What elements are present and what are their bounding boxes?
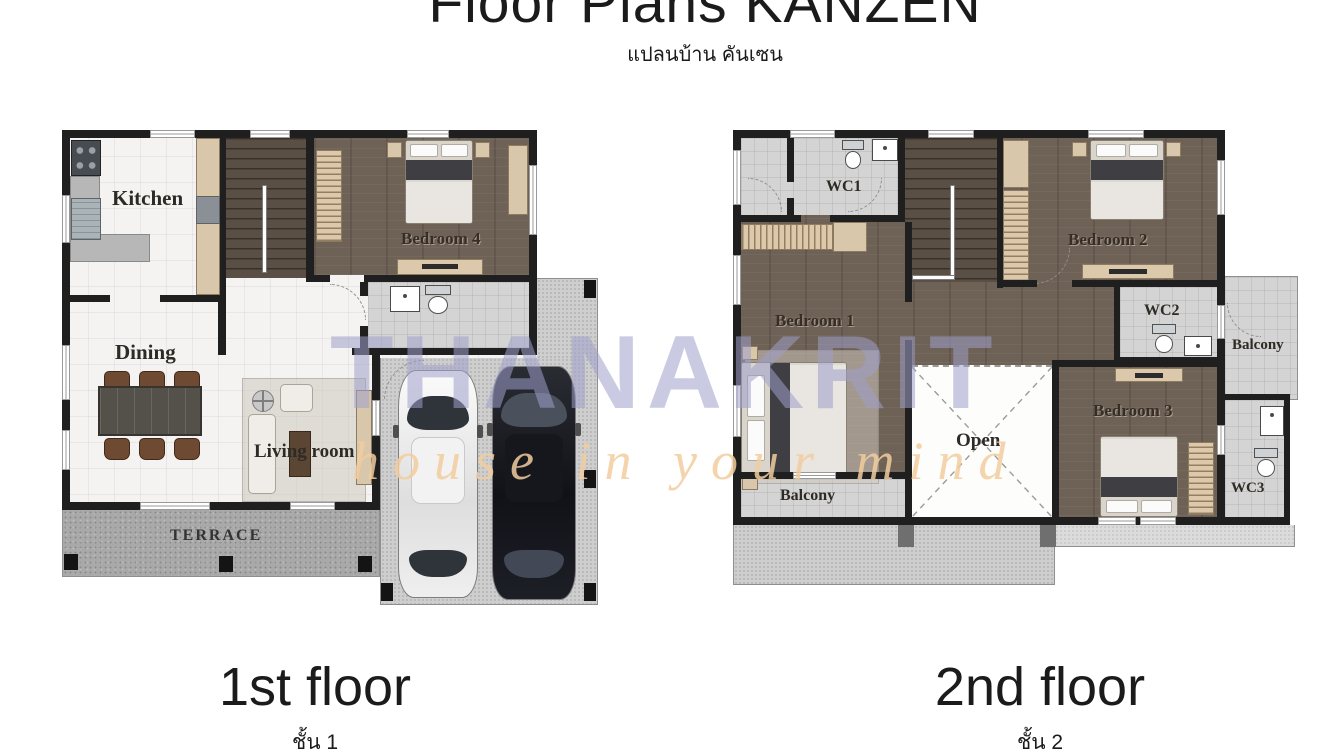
window (140, 502, 210, 510)
floor1-caption: 1st floor (150, 656, 480, 718)
door-opening (1217, 425, 1225, 455)
terrace-post (219, 556, 233, 572)
wall (70, 295, 110, 302)
window (928, 130, 974, 138)
window (150, 130, 195, 138)
wall (741, 215, 801, 222)
wall (1072, 280, 1225, 287)
bedroom1-closet (741, 224, 833, 250)
label-terrace: TERRACE (170, 527, 262, 545)
floor2-stair-railing (950, 185, 955, 280)
window (62, 345, 70, 400)
label-bedroom2: Bedroom 2 (1068, 230, 1148, 250)
shower-tray-icon (1260, 406, 1284, 436)
bedroom2-closet (1003, 190, 1029, 282)
bedroom4-nightstand (475, 142, 490, 158)
bedroom3-closet (1188, 442, 1214, 515)
floor2-stair-railing (912, 275, 955, 280)
label-bedroom3: Bedroom 3 (1093, 401, 1173, 421)
wall (905, 222, 912, 302)
dining-table (98, 386, 202, 436)
bedroom3-bed (1100, 436, 1178, 517)
garage-post (381, 583, 393, 601)
floor1-caption-thai: ชั้น 1 (150, 726, 480, 754)
window (1217, 160, 1225, 215)
window (250, 130, 290, 138)
dining-chair (104, 438, 130, 460)
toilet-icon (1254, 448, 1278, 476)
wall (306, 138, 314, 282)
bedroom2-tv-console (1082, 264, 1174, 279)
wall (997, 280, 1037, 287)
wall (364, 275, 537, 282)
page-title: Floor Plans KANZEN (340, 0, 1070, 36)
window (790, 130, 835, 138)
roof-pilaster (898, 525, 914, 547)
bed-duvet (406, 180, 472, 223)
floor-plan-sheet: Floor Plans KANZEN แปลนบ้าน คันเซน (0, 0, 1342, 754)
window (733, 150, 741, 205)
wall (1284, 394, 1290, 523)
bedroom2-nightstand (1166, 142, 1181, 157)
wall (1059, 360, 1225, 367)
roof-pilaster (1040, 525, 1056, 547)
stove-icon (71, 140, 101, 176)
window (407, 130, 449, 138)
wc-sink-icon (872, 139, 898, 161)
bed-blanket-band (406, 160, 472, 180)
door-opening (1217, 305, 1225, 339)
toilet-icon (425, 285, 451, 317)
wall (997, 138, 1003, 288)
garage-roof-slab (733, 525, 1055, 585)
bedroom3-dresser (1115, 368, 1183, 382)
terrace-post (64, 554, 78, 570)
bedroom4-wardrobe (508, 145, 528, 215)
bedroom1-wardrobe (833, 222, 867, 252)
armchair (280, 384, 313, 412)
terrace-post (358, 556, 372, 572)
floor2-caption-thai: ชั้น 2 (875, 726, 1205, 754)
wall (1217, 394, 1290, 400)
toilet-icon (1152, 324, 1176, 354)
wall (787, 138, 794, 182)
toilet-icon (842, 140, 864, 168)
window (529, 165, 537, 235)
window (62, 430, 70, 470)
bed-blanket-band (1101, 477, 1177, 497)
window (1088, 130, 1144, 138)
watermark-brand: THANAKRIT (330, 314, 1000, 433)
wall (830, 215, 905, 222)
bed-duvet (1091, 180, 1163, 219)
dining-chair (139, 438, 165, 460)
bedroom2-nightstand (1072, 142, 1087, 157)
garage-post (584, 583, 596, 601)
bedroom4-bed (405, 140, 473, 224)
label-wc2: WC2 (1144, 302, 1180, 320)
wall (733, 517, 1290, 525)
wall (360, 282, 368, 296)
dining-chair (174, 438, 200, 460)
label-balcony-side: Balcony (1232, 337, 1284, 354)
bedroom2-cabinet (1003, 140, 1029, 188)
wall (62, 130, 537, 138)
floor2-caption: 2nd floor (875, 656, 1205, 718)
wc-sink-icon (390, 286, 420, 312)
label-dining: Dining (115, 340, 176, 365)
fan-icon (252, 390, 274, 412)
eave-strip (1055, 525, 1295, 547)
bed-blanket-band (1091, 160, 1163, 180)
bedroom4-tv-console (397, 259, 483, 275)
window (62, 195, 70, 243)
garage-post (584, 280, 596, 298)
wall (1052, 360, 1059, 525)
bedroom2-bed (1090, 140, 1164, 220)
wall (220, 138, 226, 295)
watermark-tagline: house in your mind (352, 430, 1019, 492)
car-rear-window (409, 550, 467, 577)
window (290, 502, 335, 510)
wall (787, 198, 794, 215)
car-rear-window (504, 550, 565, 578)
bed-pillows (406, 141, 472, 160)
wall (898, 138, 905, 222)
wc-sink-icon (1184, 336, 1212, 356)
kitchen-appliance (196, 196, 220, 224)
bedroom4-nightstand (387, 142, 402, 158)
page-subtitle-thai: แปลนบ้าน คันเซน (340, 38, 1070, 70)
bed-pillows (1101, 497, 1177, 516)
window (1098, 517, 1136, 525)
wall (1114, 287, 1120, 363)
window (733, 255, 741, 305)
label-kitchen: Kitchen (112, 186, 183, 211)
label-wc3: WC3 (1231, 480, 1264, 497)
wall (218, 295, 226, 355)
floor1-stair-railing (262, 185, 267, 273)
window (1140, 517, 1176, 525)
bedroom4-closet (316, 150, 342, 242)
kitchen-sink-icon (71, 198, 101, 240)
wall (160, 295, 226, 302)
bed-pillows (1091, 141, 1163, 160)
label-living: Living room (254, 441, 354, 463)
label-wc1: WC1 (826, 178, 862, 196)
label-bedroom4: Bedroom 4 (401, 229, 481, 249)
wall (314, 275, 330, 282)
bed-duvet (1101, 437, 1177, 477)
